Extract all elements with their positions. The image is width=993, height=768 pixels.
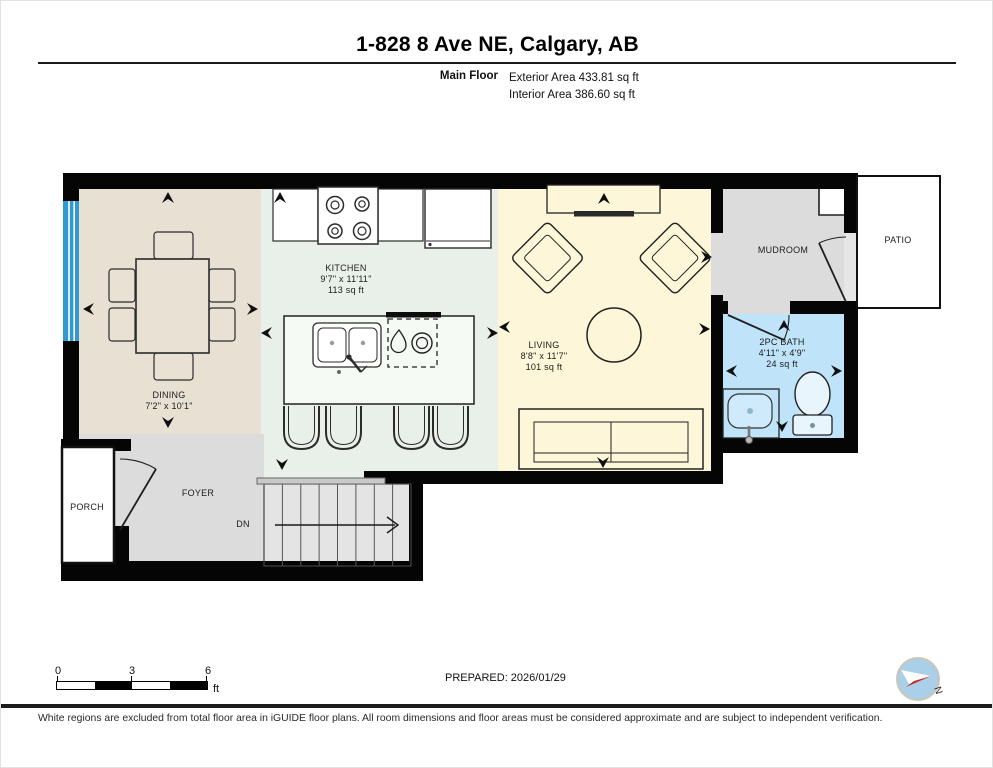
dining-label: DINING7'2" x 10'1": [145, 390, 192, 412]
mudroom-notch: [819, 189, 846, 215]
fridge-icon: [425, 189, 491, 248]
stove-icon: [318, 187, 378, 244]
living-label: LIVING8'8" x 11'7"101 sq ft: [521, 340, 568, 372]
footer-divider: [1, 704, 993, 708]
kitchen-island-icon: [284, 312, 474, 404]
scale-0: 0: [55, 665, 61, 677]
patio-door-opening: [844, 233, 858, 301]
toilet-icon: [793, 372, 832, 435]
scale-unit: ft: [213, 683, 219, 695]
floorplan-page: 1-828 8 Ave NE, Calgary, AB Main Floor E…: [0, 0, 993, 768]
porch-label: PORCH: [70, 502, 104, 513]
round-table-icon: [587, 308, 641, 362]
foyer-label: FOYER: [182, 488, 214, 499]
vanity-sink-icon: [723, 389, 779, 444]
scale-3: 3: [129, 665, 135, 677]
floorplan-drawing: [1, 1, 993, 768]
kitchen-label: KITCHEN9'7" x 11'11"113 sq ft: [320, 263, 371, 295]
sofa-icon: [519, 409, 703, 469]
bath-label: 2PC BATH4'11" x 4'9"24 sq ft: [759, 337, 806, 369]
porch-door-opening: [113, 451, 129, 526]
stairs-dn-label: DN: [236, 519, 250, 530]
mudroom-label: MUDROOM: [758, 245, 808, 256]
living-mudroom-opening: [711, 233, 723, 295]
prepared-date: PREPARED: 2026/01/29: [445, 672, 566, 684]
disclaimer-text: White regions are excluded from total fl…: [38, 713, 882, 724]
bath-door-opening: [728, 301, 790, 314]
tv-console-icon: [547, 185, 660, 217]
banister: [257, 478, 385, 484]
sink-icon: [313, 323, 381, 374]
patio-label: PATIO: [885, 235, 912, 246]
window-icon: [63, 201, 79, 341]
